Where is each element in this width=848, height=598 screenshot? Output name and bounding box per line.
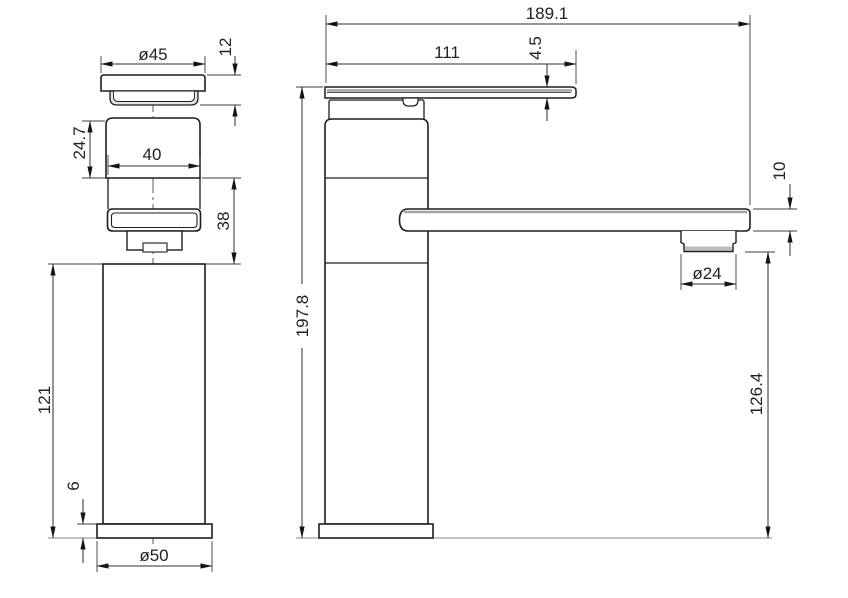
side-view: 189.1 111 4.5 197.8 10 ø24 <box>293 4 797 538</box>
front-spout-face-inner <box>112 213 198 228</box>
dim-front-column-height: 121 <box>35 264 54 538</box>
dim-front-cap-diameter: ø45 <box>101 45 205 73</box>
dim-front-base-plate-height: 6 <box>64 481 97 563</box>
dim-label-cartridge-width: 40 <box>143 145 162 164</box>
dim-side-spout-underside-height: 126.4 <box>745 252 775 538</box>
front-handle-cap-plate <box>101 75 205 91</box>
dim-label-handle-reach: 111 <box>434 43 460 62</box>
dim-label-base-plate-height: 6 <box>64 481 83 490</box>
technical-drawing-page: ø45 12 24.7 40 38 121 <box>0 0 848 598</box>
dim-label-spout-block-height: 38 <box>214 212 233 231</box>
dim-side-aerator-diameter: ø24 <box>681 254 736 290</box>
front-base-plate <box>97 524 212 538</box>
dim-front-spout-block-height: 38 <box>202 178 241 264</box>
dim-label-aerator-diameter: ø24 <box>692 264 721 283</box>
dim-label-base-diameter: ø50 <box>139 546 168 565</box>
front-handle-lip-inner <box>114 91 195 102</box>
dim-label-cap-height: 12 <box>216 38 235 57</box>
dim-front-cap-height: 12 <box>200 38 241 126</box>
dim-side-overall-height: 197.8 <box>293 87 323 538</box>
dim-label-plate-thickness: 4.5 <box>526 36 545 60</box>
dim-label-spout-thickness: 10 <box>770 162 789 181</box>
dim-side-spout-thickness: 10 <box>753 162 797 256</box>
front-aerator-notch <box>143 243 167 252</box>
dim-label-spout-underside-height: 126.4 <box>747 373 766 416</box>
side-handle-pivot-nub <box>403 98 418 106</box>
dim-label-overall-reach: 189.1 <box>526 4 569 23</box>
front-view: ø45 12 24.7 40 38 121 <box>35 38 241 572</box>
dim-side-plate-thickness: 4.5 <box>526 36 547 121</box>
side-base-plate <box>319 524 433 538</box>
front-cartridge-sides <box>108 178 200 209</box>
front-body-column <box>103 264 205 524</box>
dim-label-cap-diameter: ø45 <box>138 45 167 64</box>
dim-label-column-height: 121 <box>35 386 54 414</box>
side-body-column <box>325 119 428 524</box>
dim-label-overall-height: 197.8 <box>293 295 312 338</box>
faucet-technical-drawing: ø45 12 24.7 40 38 121 <box>0 0 848 598</box>
dim-front-base-diameter: ø50 <box>97 541 212 572</box>
dim-label-neck-height: 24.7 <box>70 126 89 159</box>
dim-front-neck-height: 24.7 <box>70 121 106 178</box>
